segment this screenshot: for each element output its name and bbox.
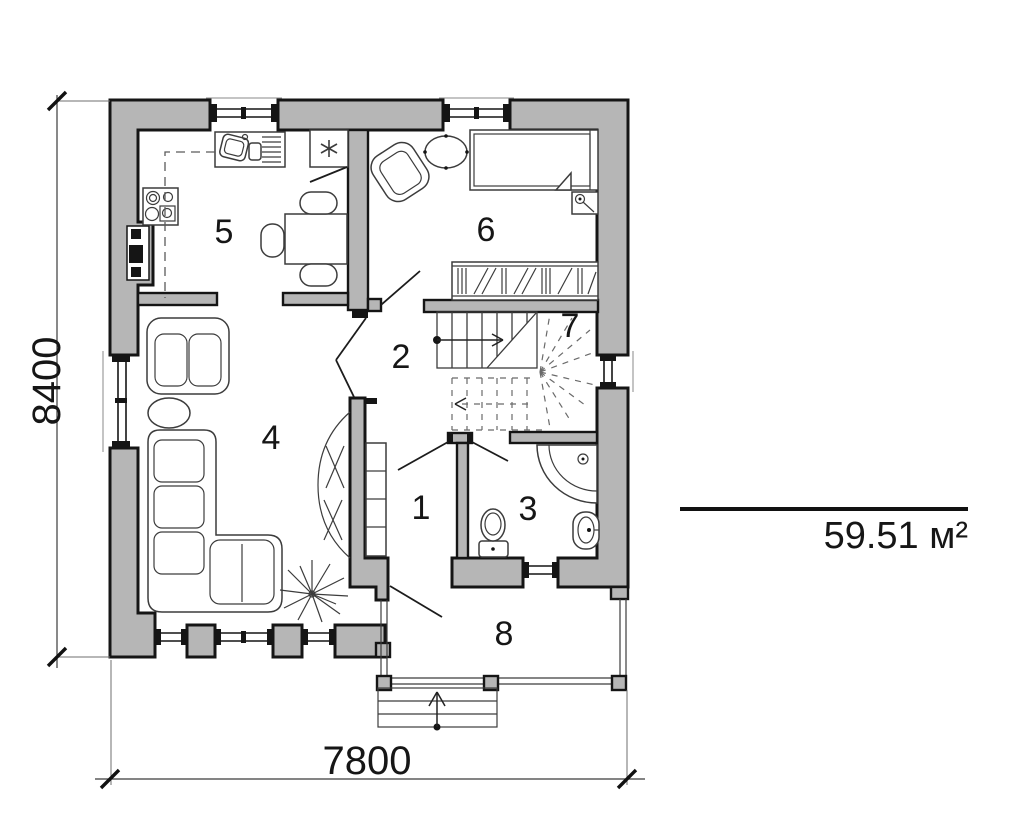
floor-plan-sheet: 8400 7800 59.51 м² 1 2 3 4 5 6 7 8 [0, 0, 1024, 833]
window-living-bottom-2 [215, 629, 273, 645]
room-label-8: 8 [495, 615, 514, 653]
door-bedroom [381, 271, 420, 305]
window-stairs [600, 351, 633, 392]
window-kitchen [206, 98, 282, 122]
door-entrance [390, 586, 442, 617]
door-kitchen [336, 318, 366, 360]
floor-plan-drawing: 8400 7800 59.51 м² 1 2 3 4 5 6 7 8 [0, 0, 1024, 833]
room-label-4: 4 [262, 419, 281, 457]
total-area-label: 59.51 м² [824, 515, 968, 557]
round-table [423, 134, 469, 170]
room-label-5: 5 [215, 213, 234, 251]
stair-direction [433, 334, 528, 410]
door-jamb [352, 310, 368, 318]
bathroom-fixtures [479, 445, 599, 557]
window-bathroom [523, 562, 558, 578]
dimension-height: 8400 [25, 337, 69, 426]
dining-table [261, 192, 347, 286]
room-label-7: 7 [561, 307, 580, 345]
wardrobe [452, 262, 598, 300]
entry-steps [378, 688, 497, 731]
bed [470, 130, 598, 190]
corner-sofa [148, 430, 282, 612]
room-label-2: 2 [392, 338, 411, 376]
loveseat-sofa [147, 318, 229, 394]
tv-cabinet [318, 412, 350, 558]
nightstand [572, 192, 598, 214]
toilet [479, 509, 508, 557]
living-room-furniture [147, 318, 350, 622]
desk-chair [366, 137, 435, 207]
window-bedroom [439, 98, 514, 122]
vent-shaft-icon [129, 229, 143, 277]
door-bathroom [472, 442, 508, 461]
room-label-3: 3 [519, 490, 538, 528]
kitchen-fixtures [143, 130, 348, 298]
window-living-bottom-3 [302, 629, 335, 645]
kitchen-sink [215, 132, 285, 167]
stove [143, 188, 178, 225]
coffee-table [148, 398, 190, 428]
shower [537, 445, 597, 503]
washbasin [573, 512, 599, 549]
hall-wardrobe [366, 443, 386, 556]
plant [280, 560, 348, 622]
room-label-1: 1 [412, 489, 431, 527]
fridge [310, 130, 348, 182]
window-living-left [103, 351, 130, 452]
window-living-bottom-1 [155, 629, 187, 645]
terrace-post [612, 676, 626, 690]
door-hall [398, 442, 448, 470]
door-living [336, 360, 354, 397]
dimension-width: 7800 [323, 739, 412, 783]
room-label-6: 6 [477, 211, 496, 249]
